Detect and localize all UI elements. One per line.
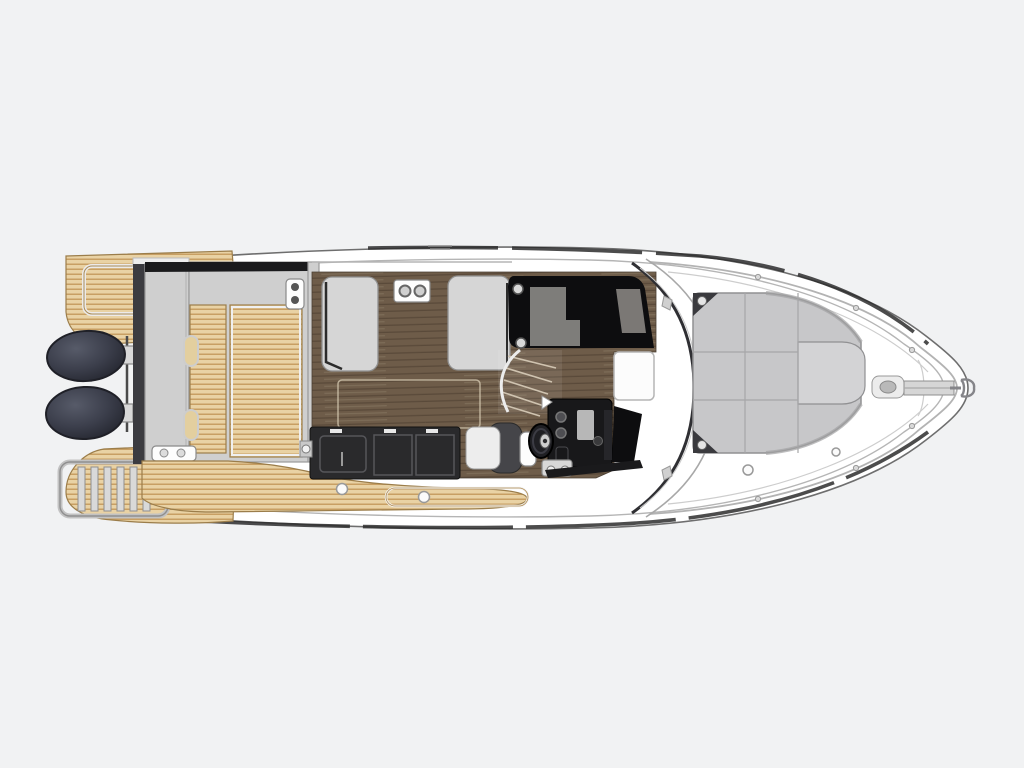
table-pedestal-plate [394,280,430,302]
helm-knob [594,437,603,446]
sunpad-screw-top [698,297,707,306]
settee-port [322,277,378,371]
cockpit-seat-outline-1 [184,336,198,366]
cockpit-teak-hatch-large [230,305,302,457]
door-hinge-plate [286,279,304,309]
galley-counter [300,427,460,479]
sunpad-raised-section [798,342,865,404]
boat-deck-plan [0,0,1024,768]
console-edge [604,410,612,460]
helm-console [548,399,612,469]
sunroof-hinge-2 [516,338,526,348]
steering-wheel [529,424,553,458]
transom-walkway [145,264,189,464]
gauge-2 [556,428,566,438]
sunroof-hinge-1 [513,284,523,294]
windlass-drum [880,381,896,393]
cockpit-latch-plate [152,446,196,461]
foredeck-sunpad [693,293,865,453]
cabin-hatch-panel [614,352,654,400]
cockpit-seat-outline-2 [184,410,198,440]
transom-dark-edge [133,264,145,464]
sunpad-screw-bottom [698,441,707,450]
gauge-1 [556,412,566,422]
cockpit-coaming-trim [145,262,308,272]
galley-side-knob [302,445,310,453]
helm-display [577,410,594,440]
